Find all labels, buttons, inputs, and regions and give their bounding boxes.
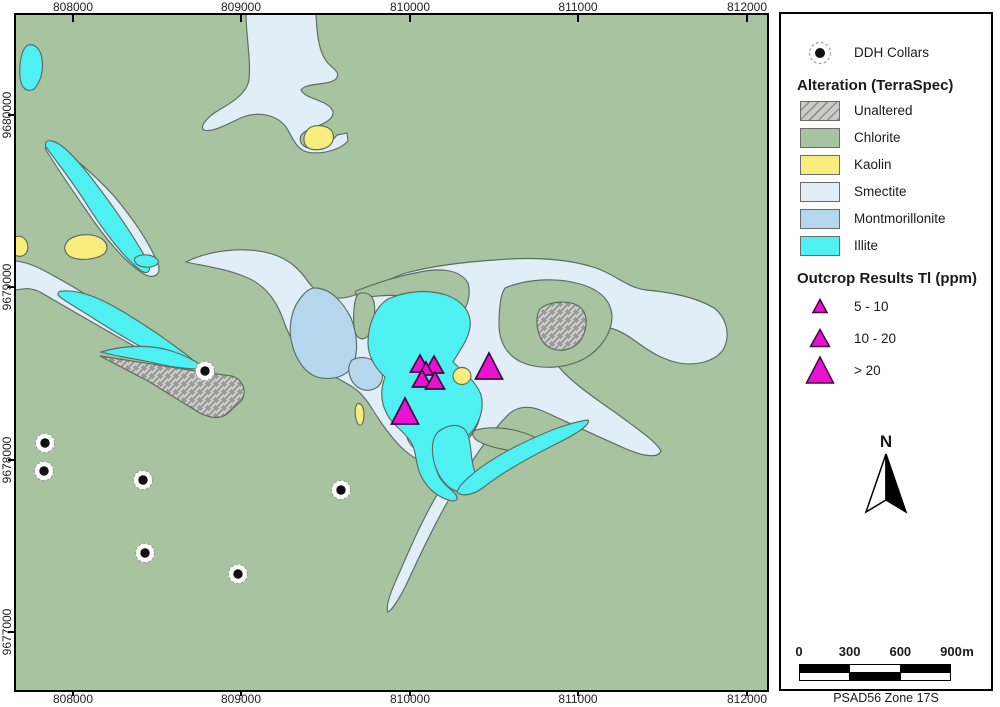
outcrop-list: 5 - 1010 - 20> 20 xyxy=(781,293,991,383)
scalebar-cell xyxy=(849,665,899,672)
legend-item-label: Unaltered xyxy=(854,103,913,118)
scalebar-number: 300 xyxy=(839,644,861,659)
x-tick-top xyxy=(72,15,74,22)
x-tick-label-top: 810000 xyxy=(390,0,430,14)
legend-ddh-row: DDH Collars xyxy=(800,42,991,63)
alteration-title: Alteration (TerraSpec) xyxy=(797,77,991,94)
scalebar-number: 600 xyxy=(889,644,911,659)
scalebar-cell xyxy=(849,673,899,680)
legend-item-illite: Illite xyxy=(800,235,991,256)
ddh-collar-marker xyxy=(134,471,153,490)
region-unaltered-knob xyxy=(537,302,586,350)
region-kaolin-top-center xyxy=(304,126,334,150)
ddh-collar-marker xyxy=(229,565,248,584)
ddh-collar-marker xyxy=(136,544,155,563)
legend-item-kaolin: Kaolin xyxy=(800,154,991,175)
scalebar-graphic xyxy=(799,664,951,681)
outcrop-title: Outcrop Results Tl (ppm) xyxy=(797,270,991,287)
map-frame xyxy=(14,13,769,692)
legend-outcrop-label: > 20 xyxy=(854,363,881,378)
legend-item-chlorite: Chlorite xyxy=(800,127,991,148)
region-kaolin-west xyxy=(65,235,107,260)
scalebar-cell xyxy=(900,673,950,680)
y-tick xyxy=(8,459,14,461)
scalebar-cell xyxy=(800,665,849,672)
x-tick-top xyxy=(409,15,411,22)
map-svg xyxy=(16,15,767,690)
outcrop-triangle-icon xyxy=(804,355,836,385)
scalebar-number: 0 xyxy=(795,644,802,659)
x-tick-label-top: 811000 xyxy=(558,0,597,14)
ddh-collars-label: DDH Collars xyxy=(854,45,929,60)
scalebar-row xyxy=(800,672,950,680)
legend-item-label: Montmorillonite xyxy=(854,211,946,226)
y-tick xyxy=(8,631,14,633)
x-tick-top xyxy=(577,15,579,22)
chlorite-swatch xyxy=(800,128,840,148)
outcrop-triangle-icon xyxy=(804,291,836,321)
north-arrow-icon xyxy=(862,452,910,514)
north-label: N xyxy=(862,432,910,452)
ddh-collar-icon xyxy=(800,40,840,66)
legend-bottom-group: N m 0300600900 PSAD56 Zone 17S xyxy=(781,517,991,707)
y-tick xyxy=(8,114,14,116)
x-tick-bottom xyxy=(577,690,579,696)
scalebar-labels: m 0300600900 xyxy=(799,644,951,660)
legend-item-unaltered: Unaltered xyxy=(800,100,991,121)
legend-item-label: Illite xyxy=(854,238,878,253)
unaltered-swatch xyxy=(800,101,840,121)
scalebar-cell xyxy=(900,665,950,672)
region-illite-west-blob xyxy=(134,255,158,267)
x-tick-top xyxy=(240,15,242,22)
kaolin-swatch xyxy=(800,155,840,175)
x-tick-top xyxy=(746,15,748,22)
ddh-collar-marker xyxy=(35,462,54,481)
legend-item-label: Kaolin xyxy=(854,157,892,172)
x-tick-bottom xyxy=(746,690,748,696)
x-tick-label-top: 812000 xyxy=(727,0,767,14)
x-tick-bottom xyxy=(72,690,74,696)
legend-item-label: Chlorite xyxy=(854,130,901,145)
region-illite-top-left-lens xyxy=(20,45,43,91)
scalebar-row xyxy=(800,665,950,672)
region-kaolin-central-dot xyxy=(453,368,471,385)
legend-outcrop-medium: 10 - 20 xyxy=(800,325,991,351)
legend-outcrop-label: 10 - 20 xyxy=(854,331,896,346)
x-tick-label-top: 809000 xyxy=(221,0,261,14)
x-tick-bottom xyxy=(240,690,242,696)
region-kaolin-west-edge xyxy=(16,236,28,256)
legend-item-smectite: Smectite xyxy=(800,181,991,202)
datum-label: PSAD56 Zone 17S xyxy=(781,691,991,705)
ddh-collar-marker xyxy=(332,481,351,500)
page: 8080008080008090008090008100008100008110… xyxy=(0,0,1000,707)
outcrop-triangle-icon xyxy=(804,323,836,353)
scalebar: m 0300600900 xyxy=(799,644,951,681)
montmorillonite-swatch xyxy=(800,209,840,229)
smectite-swatch xyxy=(800,182,840,202)
legend-item-label: Smectite xyxy=(854,184,907,199)
scalebar-unit: m xyxy=(962,644,974,659)
x-tick-bottom xyxy=(409,690,411,696)
region-kaolin-central-sliver xyxy=(355,404,364,426)
illite-swatch xyxy=(800,236,840,256)
legend-panel: DDH Collars Alteration (TerraSpec) Unalt… xyxy=(779,12,993,691)
legend-item-montmorillonite: Montmorillonite xyxy=(800,208,991,229)
legend-outcrop-large: > 20 xyxy=(800,357,991,383)
scalebar-number: 900 xyxy=(940,644,962,659)
north-arrow: N xyxy=(862,432,910,519)
ddh-collar-marker xyxy=(196,362,215,381)
alteration-list: UnalteredChloriteKaolinSmectiteMontmoril… xyxy=(781,100,991,256)
scalebar-cell xyxy=(800,673,849,680)
legend-outcrop-small: 5 - 10 xyxy=(800,293,991,319)
x-tick-label-top: 808000 xyxy=(53,0,93,14)
legend-outcrop-label: 5 - 10 xyxy=(854,299,889,314)
y-tick xyxy=(8,286,14,288)
ddh-collar-marker xyxy=(36,434,55,453)
